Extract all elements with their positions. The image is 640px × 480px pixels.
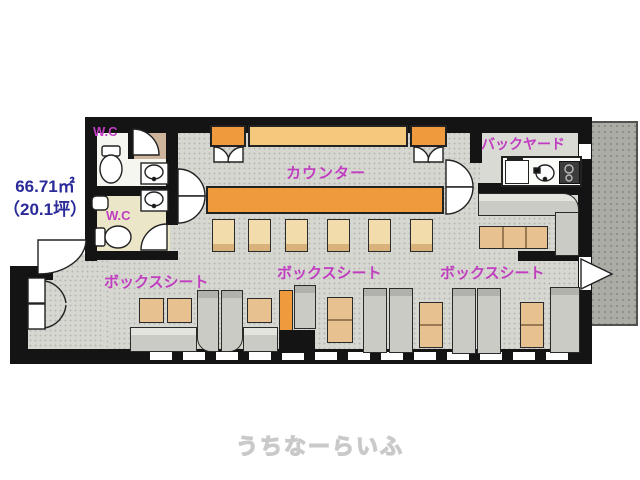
cabinet-left bbox=[210, 125, 246, 147]
floor-plan: W.C W.C カウンター バックヤード ボックスシート ボックスシート ボック… bbox=[0, 0, 640, 480]
pillar bbox=[279, 330, 315, 353]
wall-wc-middle bbox=[85, 186, 178, 196]
partition bbox=[279, 290, 293, 332]
wall-wc-vestibule bbox=[128, 131, 134, 159]
bench bbox=[550, 287, 580, 353]
backyard-label: バックヤード bbox=[481, 134, 565, 154]
counter-stool bbox=[327, 219, 350, 252]
table-l-sofa bbox=[479, 226, 548, 249]
wc-lower-floor bbox=[95, 196, 170, 254]
wall-shelf bbox=[248, 125, 408, 147]
box-seat-right-label: ボックスシート bbox=[440, 262, 545, 283]
table bbox=[520, 302, 544, 348]
bench bbox=[294, 285, 316, 329]
counter-label: カウンター bbox=[286, 162, 366, 183]
wc-vestibule-floor bbox=[130, 131, 170, 159]
bench bbox=[477, 288, 501, 354]
bench bbox=[363, 288, 387, 353]
table bbox=[139, 298, 164, 323]
counter-stool bbox=[285, 219, 308, 252]
exterior-hatched-area bbox=[588, 121, 638, 326]
wall-left bbox=[10, 266, 28, 362]
wall-left-stub bbox=[10, 266, 53, 280]
site-watermark: うちなーらいふ bbox=[0, 429, 640, 461]
floor-area-tsubo: （20.1坪） bbox=[3, 199, 87, 222]
refrigerator-icon bbox=[505, 160, 529, 184]
bench bbox=[389, 288, 413, 353]
bench bbox=[197, 290, 219, 352]
counter-stool bbox=[368, 219, 391, 252]
table bbox=[419, 302, 443, 348]
floor-area-annotation: 66.71㎡ （20.1坪） bbox=[3, 176, 87, 222]
wall-opening-entrance bbox=[579, 257, 591, 290]
counter-stool bbox=[410, 219, 433, 252]
bench bbox=[130, 327, 197, 352]
wall-wc-right bbox=[166, 131, 178, 225]
wall-wc-bottom bbox=[85, 251, 178, 260]
cabinet-right bbox=[410, 125, 447, 147]
entry-floor bbox=[28, 278, 103, 354]
window-band bbox=[150, 352, 578, 360]
table bbox=[247, 298, 272, 323]
table bbox=[167, 298, 192, 323]
wc-lower-label: W.C bbox=[106, 208, 131, 223]
counter-stool bbox=[212, 219, 235, 252]
box-seat-center-label: ボックスシート bbox=[277, 262, 382, 283]
bench bbox=[221, 290, 243, 352]
wc-upper-label: W.C bbox=[93, 124, 118, 139]
box-seat-left-label: ボックスシート bbox=[104, 271, 209, 292]
bench-l-side bbox=[555, 212, 579, 256]
floor-area-sqm: 66.71㎡ bbox=[3, 176, 87, 199]
bench bbox=[452, 288, 476, 354]
main-counter bbox=[206, 186, 444, 214]
stove-icon bbox=[559, 161, 580, 184]
bench bbox=[243, 327, 278, 352]
table bbox=[327, 297, 353, 343]
counter-stool bbox=[248, 219, 271, 252]
